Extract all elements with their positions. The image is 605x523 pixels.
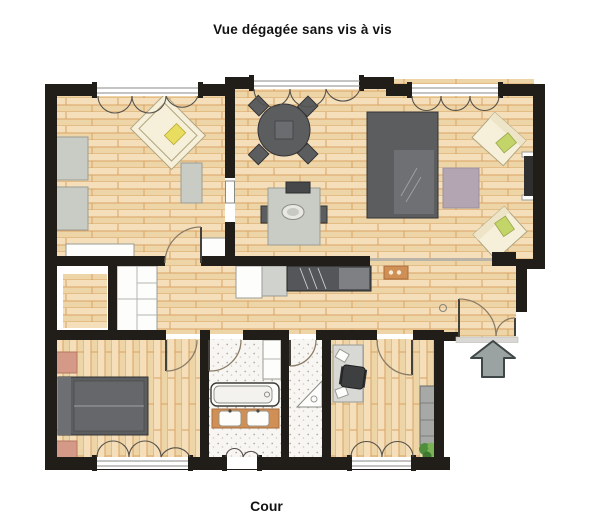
- sideboard-right: [181, 163, 202, 203]
- entry-threshold: [456, 337, 518, 343]
- kitchen-cabinet: [236, 266, 262, 298]
- entrance-arrow-icon: [471, 341, 515, 377]
- kitchen-appliance: [262, 266, 287, 296]
- low-cabinet: [66, 244, 134, 257]
- door-living-top-left: [225, 178, 235, 222]
- sideboard-left-1: [56, 137, 88, 180]
- dining-table-center: [275, 121, 293, 139]
- desk-chair: [339, 364, 368, 389]
- dressing-floor: [63, 274, 107, 328]
- sink: [247, 411, 269, 426]
- passage-threshold: [370, 258, 492, 261]
- island-appliance: [286, 182, 310, 193]
- bed: [58, 377, 148, 435]
- floor-plan: [0, 0, 605, 523]
- vanity-double-sink: [212, 409, 279, 428]
- sink: [219, 411, 241, 426]
- kitchen-island: [261, 182, 327, 245]
- cooktop: [384, 266, 408, 279]
- bathtub: [211, 383, 279, 406]
- courtyard-label: Cour: [0, 498, 533, 514]
- sofa: [367, 112, 438, 218]
- rug: [443, 168, 479, 208]
- sideboard-left-2: [56, 187, 88, 230]
- office-wardrobe: [420, 386, 435, 445]
- floor-plan-page: Vue dégagée sans vis à vis: [0, 0, 605, 523]
- kitchen-counter: [287, 266, 371, 291]
